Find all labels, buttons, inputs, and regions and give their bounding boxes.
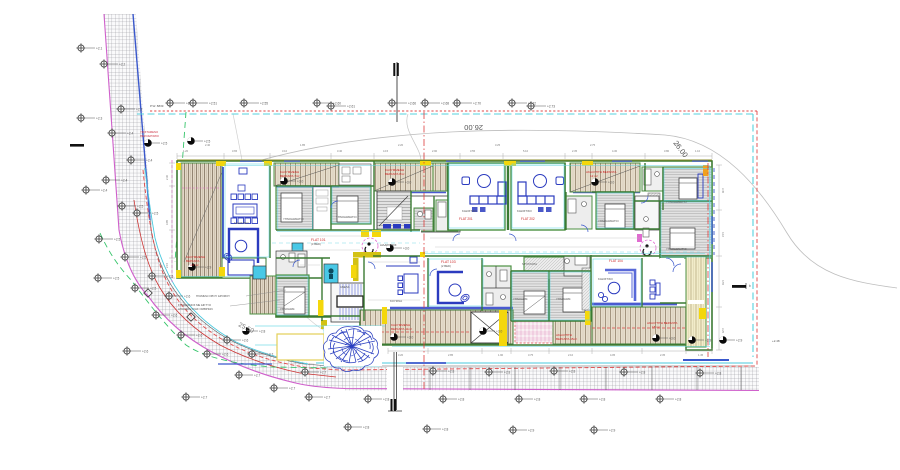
svg-text:+2.3: +2.3 [96, 117, 103, 121]
svg-text:ΥΠΝΟΔΩΜ.: ΥΠΝΟΔΩΜ. [513, 297, 528, 301]
svg-text:4.10: 4.10 [721, 232, 725, 238]
svg-text:+2.66: +2.66 [408, 102, 416, 106]
svg-text:+2.51: +2.51 [209, 102, 217, 106]
svg-text:ΚΟΥΖΙΝΑ: ΚΟΥΖΙΝΑ [390, 299, 402, 303]
svg-text:3.20: 3.20 [398, 353, 404, 357]
svg-text:1.85: 1.85 [300, 143, 306, 147]
svg-text:+2.6: +2.6 [242, 339, 249, 343]
svg-text:3.25: 3.25 [495, 143, 501, 147]
svg-text:+2.55: +2.55 [260, 102, 268, 106]
svg-text:2.35: 2.35 [572, 149, 578, 153]
svg-text:ΒΕΡΑΝΤΑ 15m²: ΒΕΡΑΝΤΑ 15m² [556, 337, 577, 341]
svg-text:ΥΠΝΟΔΩΜ.: ΥΠΝΟΔΩΜ. [280, 307, 295, 311]
svg-text:ΒΕΡΑΝΤΑ 8m²: ΒΕΡΑΝΤΑ 8m² [385, 172, 404, 176]
svg-text:+2.5: +2.5 [161, 142, 168, 146]
svg-text:+3.0: +3.0 [407, 336, 414, 340]
svg-text:4.55: 4.55 [721, 280, 725, 286]
svg-text:ΚΑΘΙΣΤΙΚΟ: ΚΑΘΙΣΤΙΚΟ [462, 209, 478, 213]
svg-text:+2.6: +2.6 [222, 353, 229, 357]
svg-text:2.15: 2.15 [675, 143, 681, 147]
svg-text:ΝΤΟΥΛΑΠΑ: ΝΤΟΥΛΑΠΑ [522, 262, 537, 266]
svg-text:+2.61: +2.61 [347, 105, 355, 109]
svg-text:2.30: 2.30 [165, 174, 169, 180]
svg-text:3.10: 3.10 [282, 149, 288, 153]
svg-text:2.20: 2.20 [398, 143, 404, 147]
svg-text:ΥΠΝΟΔΩΜΑΤΙΟ: ΥΠΝΟΔΩΜΑΤΙΟ [283, 217, 304, 221]
svg-text:+2.6: +2.6 [142, 350, 149, 354]
svg-text:+2.8: +2.8 [715, 372, 722, 376]
svg-text:+2.48: +2.48 [772, 339, 780, 343]
svg-text:ΥΠΝΟΔΩΜΑΤΙΟ: ΥΠΝΟΔΩΜΑΤΙΟ [666, 247, 687, 251]
svg-text:ΔΙΑΔΡΟΜΟΣ: ΔΙΑΔΡΟΜΟΣ [380, 243, 397, 247]
svg-text:+2.2: +2.2 [119, 63, 126, 67]
svg-text:+2.4: +2.4 [101, 189, 108, 193]
svg-text:+3.0: +3.0 [496, 330, 503, 334]
svg-text:+2.5: +2.5 [152, 212, 159, 216]
svg-text:ΥΠΝΟΔΩΜΑΤΙΟ: ΥΠΝΟΔΩΜΑΤΙΟ [336, 215, 357, 219]
svg-text:1.90: 1.90 [498, 353, 504, 357]
svg-text:2.90: 2.90 [432, 149, 438, 153]
svg-text:+3.0: +3.0 [669, 337, 676, 341]
svg-text:2.15: 2.15 [165, 262, 169, 268]
svg-text:4.8 m²: 4.8 m² [190, 263, 199, 267]
svg-text:+2.9: +2.9 [736, 339, 743, 343]
svg-text:26.00: 26.00 [464, 123, 483, 132]
svg-text:+2.5: +2.5 [140, 256, 147, 260]
svg-text:+3.0: +3.0 [297, 180, 304, 184]
svg-text:18 m²: 18 m² [652, 325, 660, 329]
svg-text:ΒΕΡΑΝΤΑ 11m²: ΒΕΡΑΝΤΑ 11m² [391, 327, 412, 331]
svg-text:ΑΝΕΛΚ.: ΑΝΕΛΚ. [340, 285, 350, 289]
svg-text:P.W. 8839: P.W. 8839 [150, 104, 164, 108]
svg-text:+2.8: +2.8 [442, 428, 449, 432]
svg-text:ΚΑΘΙΣΤΙΚΟ: ΚΑΘΙΣΤΙΚΟ [598, 277, 614, 281]
svg-text:1.20: 1.20 [183, 149, 189, 153]
svg-text:2.85: 2.85 [448, 353, 454, 357]
svg-text:3.45: 3.45 [721, 188, 725, 194]
svg-text:+2.7: +2.7 [267, 353, 274, 357]
svg-text:+2.9: +2.9 [705, 339, 712, 343]
svg-text:+3.0: +3.0 [403, 247, 410, 251]
svg-text:+2.68: +2.68 [441, 102, 449, 106]
svg-text:FLAT 104: FLAT 104 [609, 259, 623, 263]
svg-text:2.40: 2.40 [205, 143, 211, 147]
svg-text:+2.73: +2.73 [547, 105, 555, 109]
svg-text:+2.1: +2.1 [96, 47, 103, 51]
svg-text:3.65: 3.65 [232, 149, 238, 153]
svg-text:+2.5: +2.5 [204, 140, 211, 144]
svg-text:+2.8: +2.8 [504, 371, 511, 375]
svg-text:ΚΑΘΙΣΤΙΚΟ: ΚΑΘΙΣΤΙΚΟ [517, 209, 533, 213]
svg-text:ΥΠΝΟΔΩΜΑΤΙΟ: ΥΠΝΟΔΩΜΑΤΙΟ [666, 200, 687, 204]
svg-text:ΠΕΖΟΔΡΟΜΙΟ: ΠΕΖΟΔΡΟΜΙΟ [140, 134, 160, 138]
svg-text:2.75: 2.75 [590, 143, 596, 147]
svg-text:+2.7: +2.7 [254, 374, 261, 378]
svg-text:4.05: 4.05 [610, 353, 616, 357]
svg-text:+2.5: +2.5 [113, 277, 120, 281]
svg-text:1.10: 1.10 [695, 149, 701, 153]
svg-text:+2.5: +2.5 [150, 287, 157, 291]
svg-text:+2.9: +2.9 [609, 429, 616, 433]
svg-text:+2.7: +2.7 [324, 396, 331, 400]
svg-text:+2.8: +2.8 [363, 426, 370, 430]
svg-text:+2.4: +2.4 [127, 132, 134, 136]
svg-text:+2.70: +2.70 [473, 102, 481, 106]
svg-text:+2.8: +2.8 [448, 370, 455, 374]
svg-text:+2.8: +2.8 [599, 398, 606, 402]
svg-text:2.10: 2.10 [568, 353, 574, 357]
svg-text:4.15: 4.15 [383, 149, 389, 153]
svg-text:+2.8: +2.8 [534, 398, 541, 402]
svg-text:FLAT 201: FLAT 201 [459, 217, 473, 221]
svg-text:+3.0: +3.0 [405, 181, 412, 185]
svg-text:+2.6: +2.6 [171, 314, 178, 318]
svg-text:3.85: 3.85 [165, 219, 169, 225]
svg-text:+2.6: +2.6 [184, 295, 191, 299]
svg-text:+2.7: +2.7 [289, 387, 296, 391]
svg-text:+2.7: +2.7 [320, 371, 327, 375]
svg-text:+2.4: +2.4 [121, 179, 128, 183]
svg-text:+2.8: +2.8 [639, 371, 646, 375]
svg-text:+2.8: +2.8 [259, 330, 266, 334]
svg-text:+2.8: +2.8 [675, 398, 682, 402]
svg-text:ΚΑΘΙΣΤΙΚΟ: ΚΑΘΙΣΤΙΚΟ [234, 221, 250, 225]
svg-text:+2.5: +2.5 [114, 238, 121, 242]
svg-text:ΑΠΟΧΕΤΕΥΣΗΣ ΟΜΒΡΙΩΝ: ΑΠΟΧΕΤΕΥΣΗΣ ΟΜΒΡΙΩΝ [178, 307, 213, 311]
svg-text:+3.0: +3.0 [608, 181, 615, 185]
svg-text:4.30: 4.30 [612, 149, 618, 153]
svg-text:3.40: 3.40 [337, 149, 343, 153]
svg-text:3.80: 3.80 [664, 149, 670, 153]
svg-text:+2.8: +2.8 [383, 398, 390, 402]
svg-text:ΓΡΑΜΜΗ ΟΡΙΟΥ ΔΡΟΜΟΥ: ΓΡΑΜΜΗ ΟΡΙΟΥ ΔΡΟΜΟΥ [196, 294, 230, 298]
svg-text:+2.6: +2.6 [196, 334, 203, 338]
svg-text:3.55: 3.55 [470, 149, 476, 153]
svg-text:+2.5: +2.5 [137, 205, 144, 209]
svg-text:3.25: 3.25 [721, 328, 725, 334]
svg-text:+2.7: +2.7 [201, 396, 208, 400]
svg-text:(2 BED): (2 BED) [441, 264, 451, 268]
svg-text:12 m²: 12 m² [590, 174, 598, 178]
svg-text:ΥΠΝΟΔΩΜ.: ΥΠΝΟΔΩΜ. [556, 297, 571, 301]
svg-text:ΥΠΝΟΔΩΜΑΤΙΟ: ΥΠΝΟΔΩΜΑΤΙΟ [598, 219, 619, 223]
svg-text:+2.8: +2.8 [458, 398, 465, 402]
svg-text:+2.9: +2.9 [528, 429, 535, 433]
svg-text:FLAT 202: FLAT 202 [521, 217, 535, 221]
svg-text:5.10: 5.10 [523, 149, 529, 153]
svg-text:3.75: 3.75 [528, 353, 534, 357]
svg-text:+2.3: +2.3 [136, 108, 143, 112]
svg-text:1.45: 1.45 [698, 353, 704, 357]
svg-text:+2.8: +2.8 [569, 370, 576, 374]
svg-text:+2.4: +2.4 [146, 159, 153, 163]
svg-text:ΒΕΡΑΝΤΑ 7m²: ΒΕΡΑΝΤΑ 7m² [280, 174, 299, 178]
svg-text:2.35: 2.35 [660, 353, 666, 357]
svg-text:+2.5: +2.5 [167, 275, 174, 279]
svg-text:(3 BED): (3 BED) [311, 242, 321, 246]
svg-text:+2.9: +2.9 [205, 266, 212, 270]
svg-text:b: b [749, 284, 751, 288]
